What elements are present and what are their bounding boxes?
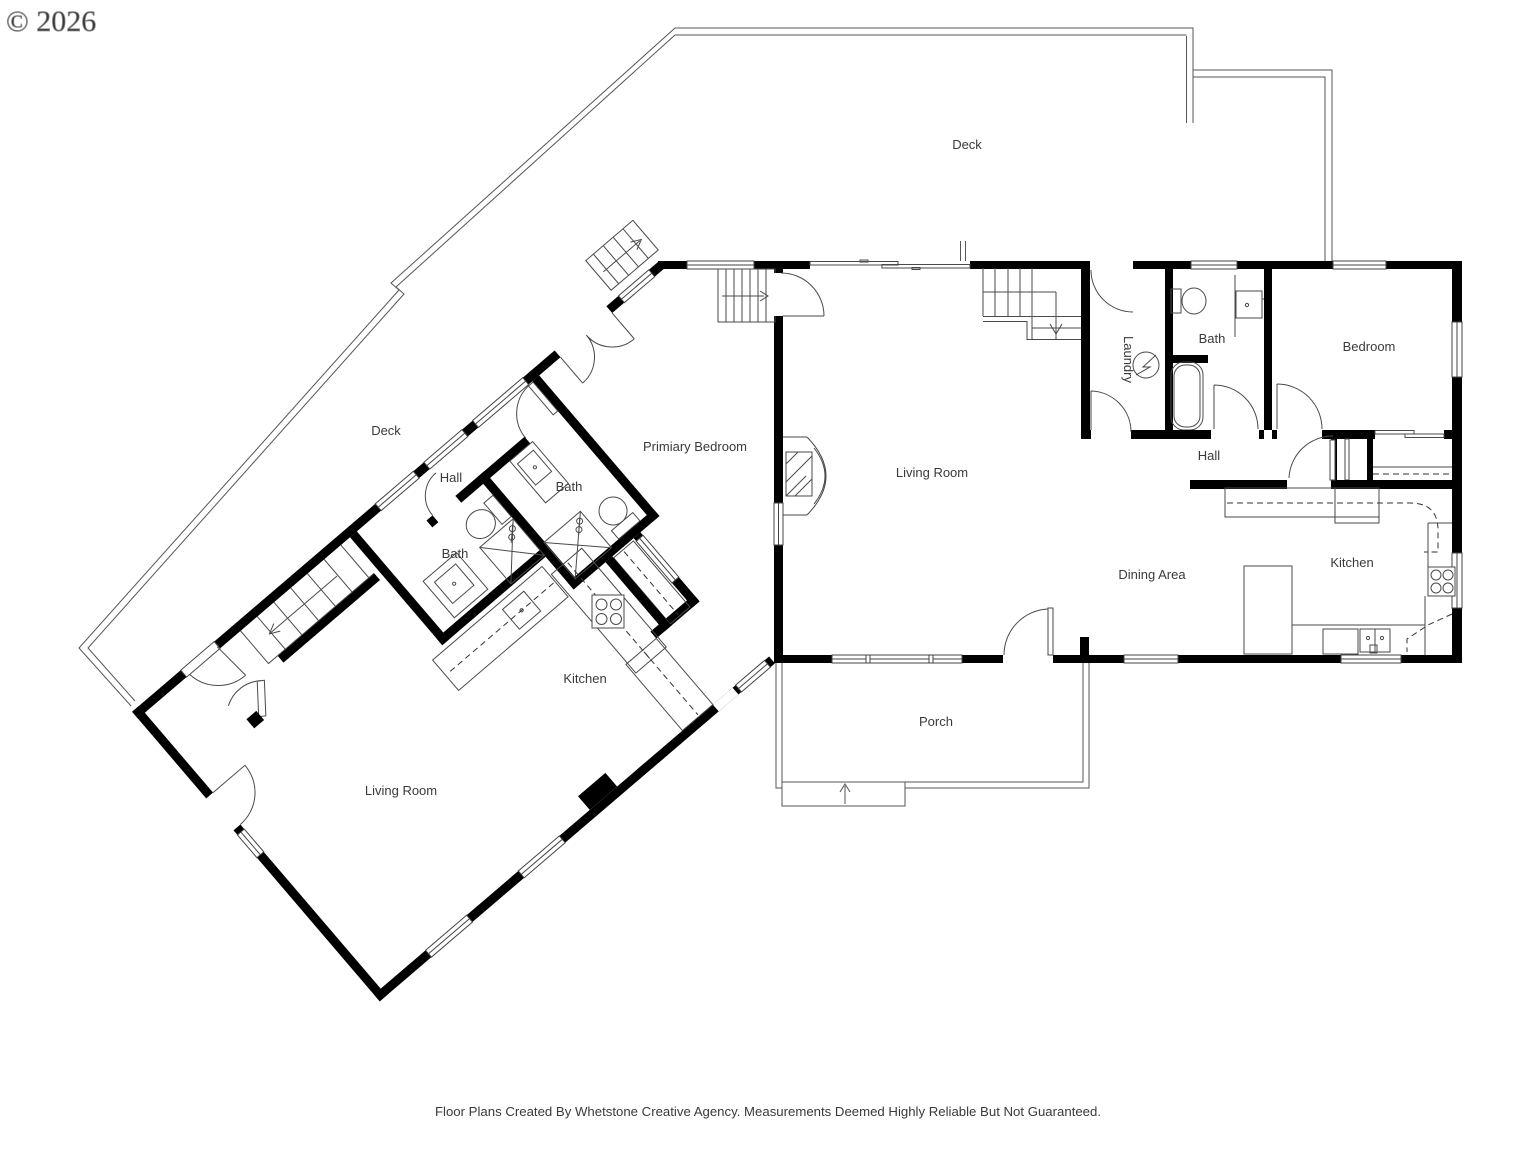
svg-text:Bedroom: Bedroom — [1343, 339, 1396, 354]
svg-text:Living Room: Living Room — [365, 783, 437, 798]
svg-text:Bath: Bath — [442, 546, 469, 561]
svg-text:Kitchen: Kitchen — [563, 671, 606, 686]
svg-text:Dining Area: Dining Area — [1118, 567, 1186, 582]
svg-text:Kitchen: Kitchen — [1330, 555, 1373, 570]
svg-text:Hall: Hall — [1198, 448, 1221, 463]
svg-text:Porch: Porch — [919, 714, 953, 729]
svg-text:Living Room: Living Room — [896, 465, 968, 480]
svg-text:Primiary Bedroom: Primiary Bedroom — [643, 439, 747, 454]
svg-text:Laundry: Laundry — [1121, 336, 1136, 383]
svg-text:Floor Plans Created By Whetsto: Floor Plans Created By Whetstone Creativ… — [435, 1104, 1101, 1119]
svg-text:Bath: Bath — [556, 479, 583, 494]
svg-text:Hall: Hall — [440, 470, 463, 485]
svg-text:Deck: Deck — [952, 137, 982, 152]
svg-text:© 2026: © 2026 — [6, 5, 96, 38]
svg-text:Bath: Bath — [1199, 331, 1226, 346]
svg-text:Deck: Deck — [371, 423, 401, 438]
